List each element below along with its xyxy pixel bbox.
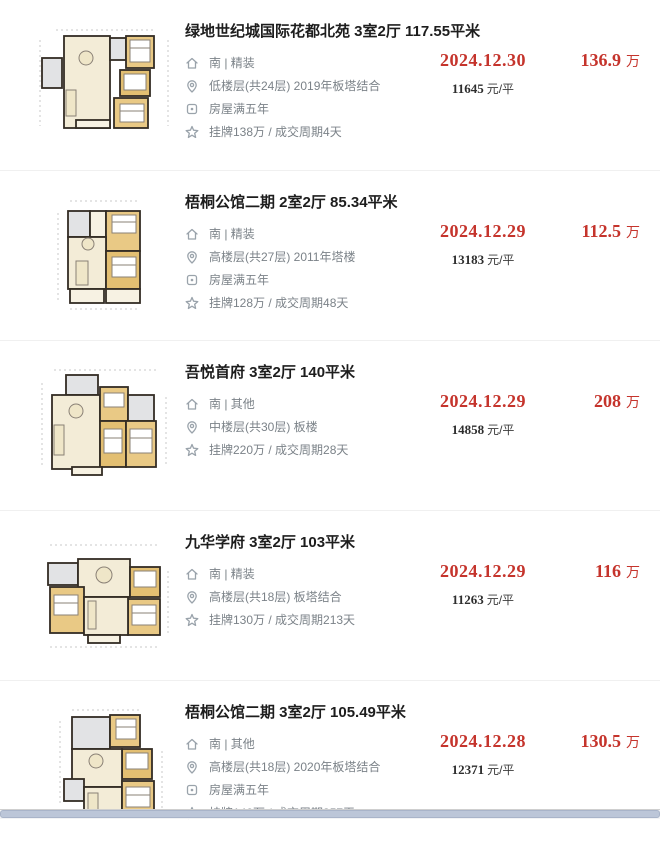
listing-item[interactable]: 梧桐公馆二期 2室2厅 85.34平米 南 | 精装 高楼层(共27层) 201… <box>0 170 660 340</box>
total-price-column: 208万 <box>594 391 640 412</box>
unit-price-unit: 元/平 <box>487 253 514 267</box>
unit-price-unit: 元/平 <box>487 593 514 607</box>
cycle-text: 挂牌130万 / 成交周期213天 <box>209 611 355 628</box>
star-icon <box>185 443 199 457</box>
orientation-text: 南 | 其他 <box>209 395 255 412</box>
horizontal-scrollbar-thumb[interactable] <box>0 810 660 818</box>
floor-text: 中楼层(共30层) 板楼 <box>209 418 318 435</box>
deal-column: 2024.12.29 13183元/平 <box>428 221 538 269</box>
total-price-column: 136.9万 <box>581 50 641 71</box>
total-price-unit: 万 <box>626 394 640 410</box>
deal-date: 2024.12.30 <box>428 50 538 71</box>
listing-title[interactable]: 吾悦首府 3室2厅 140平米 <box>185 363 640 383</box>
deal-column: 2024.12.29 11263元/平 <box>428 561 538 609</box>
floor-text: 低楼层(共24层) 2019年板塔结合 <box>209 77 380 94</box>
floor-text: 高楼层(共27层) 2011年塔楼 <box>209 248 355 265</box>
tax-text: 房屋满五年 <box>209 100 269 117</box>
unit-price: 13183 <box>452 252 485 267</box>
floor-row: 高楼层(共27层) 2011年塔楼 <box>185 245 640 268</box>
floor-text: 高楼层(共18层) 2020年板塔结合 <box>209 758 380 775</box>
floor-row: 低楼层(共24层) 2019年板塔结合 <box>185 74 640 97</box>
house-icon <box>185 56 199 70</box>
total-price: 136.9 <box>581 50 622 70</box>
certificate-icon <box>185 102 199 116</box>
location-pin-icon <box>185 420 199 434</box>
deal-column: 2024.12.29 14858元/平 <box>428 391 538 439</box>
unit-price-unit: 元/平 <box>487 423 514 437</box>
orientation-text: 南 | 精装 <box>209 225 255 242</box>
unit-price: 14858 <box>452 422 485 437</box>
orientation-row: 南 | 精装 <box>185 51 640 74</box>
house-icon <box>185 397 199 411</box>
listing-title[interactable]: 绿地世纪城国际花都北苑 3室2厅 117.55平米 <box>185 22 640 42</box>
cycle-text: 挂牌128万 / 成交周期48天 <box>209 294 348 311</box>
floor-row: 高楼层(共18层) 板塔结合 <box>185 585 640 608</box>
cycle-text: 挂牌138万 / 成交周期4天 <box>209 123 342 140</box>
floor-text: 高楼层(共18层) 板塔结合 <box>209 588 342 605</box>
star-icon <box>185 296 199 310</box>
tax-text: 房屋满五年 <box>209 271 269 288</box>
certificate-icon <box>185 783 199 797</box>
location-pin-icon <box>185 760 199 774</box>
total-price-unit: 万 <box>626 224 640 240</box>
orientation-row: 南 | 其他 <box>185 732 640 755</box>
deal-date: 2024.12.29 <box>428 221 538 242</box>
tax-text: 房屋满五年 <box>209 781 269 798</box>
orientation-row: 南 | 其他 <box>185 392 640 415</box>
deal-column: 2024.12.30 11645元/平 <box>428 50 538 98</box>
floor-row: 中楼层(共30层) 板楼 <box>185 415 640 438</box>
floorplan-image[interactable] <box>36 707 172 823</box>
unit-price-unit: 元/平 <box>487 82 514 96</box>
orientation-text: 南 | 精装 <box>209 565 255 582</box>
orientation-row: 南 | 精装 <box>185 562 640 585</box>
total-price: 208 <box>594 391 621 411</box>
star-icon <box>185 613 199 627</box>
unit-price-unit: 元/平 <box>487 763 514 777</box>
listing-title[interactable]: 梧桐公馆二期 2室2厅 85.34平米 <box>185 193 640 213</box>
location-pin-icon <box>185 79 199 93</box>
total-price: 130.5 <box>581 731 622 751</box>
floorplan-image[interactable] <box>36 367 172 483</box>
listing-item[interactable]: 梧桐公馆二期 3室2厅 105.49平米 南 | 其他 高楼层(共18层) 20… <box>0 680 660 850</box>
total-price-unit: 万 <box>626 734 640 750</box>
tax-row: 房屋满五年 <box>185 268 640 291</box>
total-price: 116 <box>595 561 621 581</box>
cycle-row: 挂牌128万 / 成交周期48天 <box>185 291 640 314</box>
floorplan-image[interactable] <box>36 537 172 653</box>
cycle-row: 挂牌130万 / 成交周期213天 <box>185 608 640 631</box>
unit-price: 12371 <box>452 762 485 777</box>
orientation-text: 南 | 其他 <box>209 735 255 752</box>
star-icon <box>185 125 199 139</box>
deal-date: 2024.12.29 <box>428 391 538 412</box>
cycle-text: 挂牌220万 / 成交周期28天 <box>209 441 348 458</box>
listing-title[interactable]: 九华学府 3室2厅 103平米 <box>185 533 640 553</box>
total-price-unit: 万 <box>626 564 640 580</box>
total-price-column: 112.5万 <box>581 221 640 242</box>
deal-date: 2024.12.28 <box>428 731 538 752</box>
house-icon <box>185 737 199 751</box>
floor-row: 高楼层(共18层) 2020年板塔结合 <box>185 755 640 778</box>
location-pin-icon <box>185 250 199 264</box>
deal-date: 2024.12.29 <box>428 561 538 582</box>
orientation-text: 南 | 精装 <box>209 54 255 71</box>
unit-price: 11263 <box>452 592 484 607</box>
tax-row: 房屋满五年 <box>185 97 640 120</box>
orientation-row: 南 | 精装 <box>185 222 640 245</box>
tax-row: 房屋满五年 <box>185 778 640 801</box>
certificate-icon <box>185 273 199 287</box>
floorplan-image[interactable] <box>36 197 172 313</box>
cycle-row: 挂牌220万 / 成交周期28天 <box>185 438 640 461</box>
listing-item[interactable]: 绿地世纪城国际花都北苑 3室2厅 117.55平米 南 | 精装 低楼层(共24… <box>0 0 660 170</box>
unit-price: 11645 <box>452 81 484 96</box>
listing-title[interactable]: 梧桐公馆二期 3室2厅 105.49平米 <box>185 703 640 723</box>
house-icon <box>185 567 199 581</box>
total-price-unit: 万 <box>626 53 640 69</box>
total-price-column: 130.5万 <box>581 731 641 752</box>
horizontal-scrollbar[interactable] <box>0 809 660 819</box>
total-price: 112.5 <box>581 221 621 241</box>
total-price-column: 116万 <box>595 561 640 582</box>
location-pin-icon <box>185 590 199 604</box>
house-icon <box>185 227 199 241</box>
listing-item[interactable]: 吾悦首府 3室2厅 140平米 南 | 其他 中楼层(共30层) 板楼 挂牌22… <box>0 340 660 510</box>
deal-column: 2024.12.28 12371元/平 <box>428 731 538 779</box>
cycle-row: 挂牌138万 / 成交周期4天 <box>185 120 640 143</box>
floorplan-image[interactable] <box>36 26 172 142</box>
listing-item[interactable]: 九华学府 3室2厅 103平米 南 | 精装 高楼层(共18层) 板塔结合 挂牌… <box>0 510 660 680</box>
